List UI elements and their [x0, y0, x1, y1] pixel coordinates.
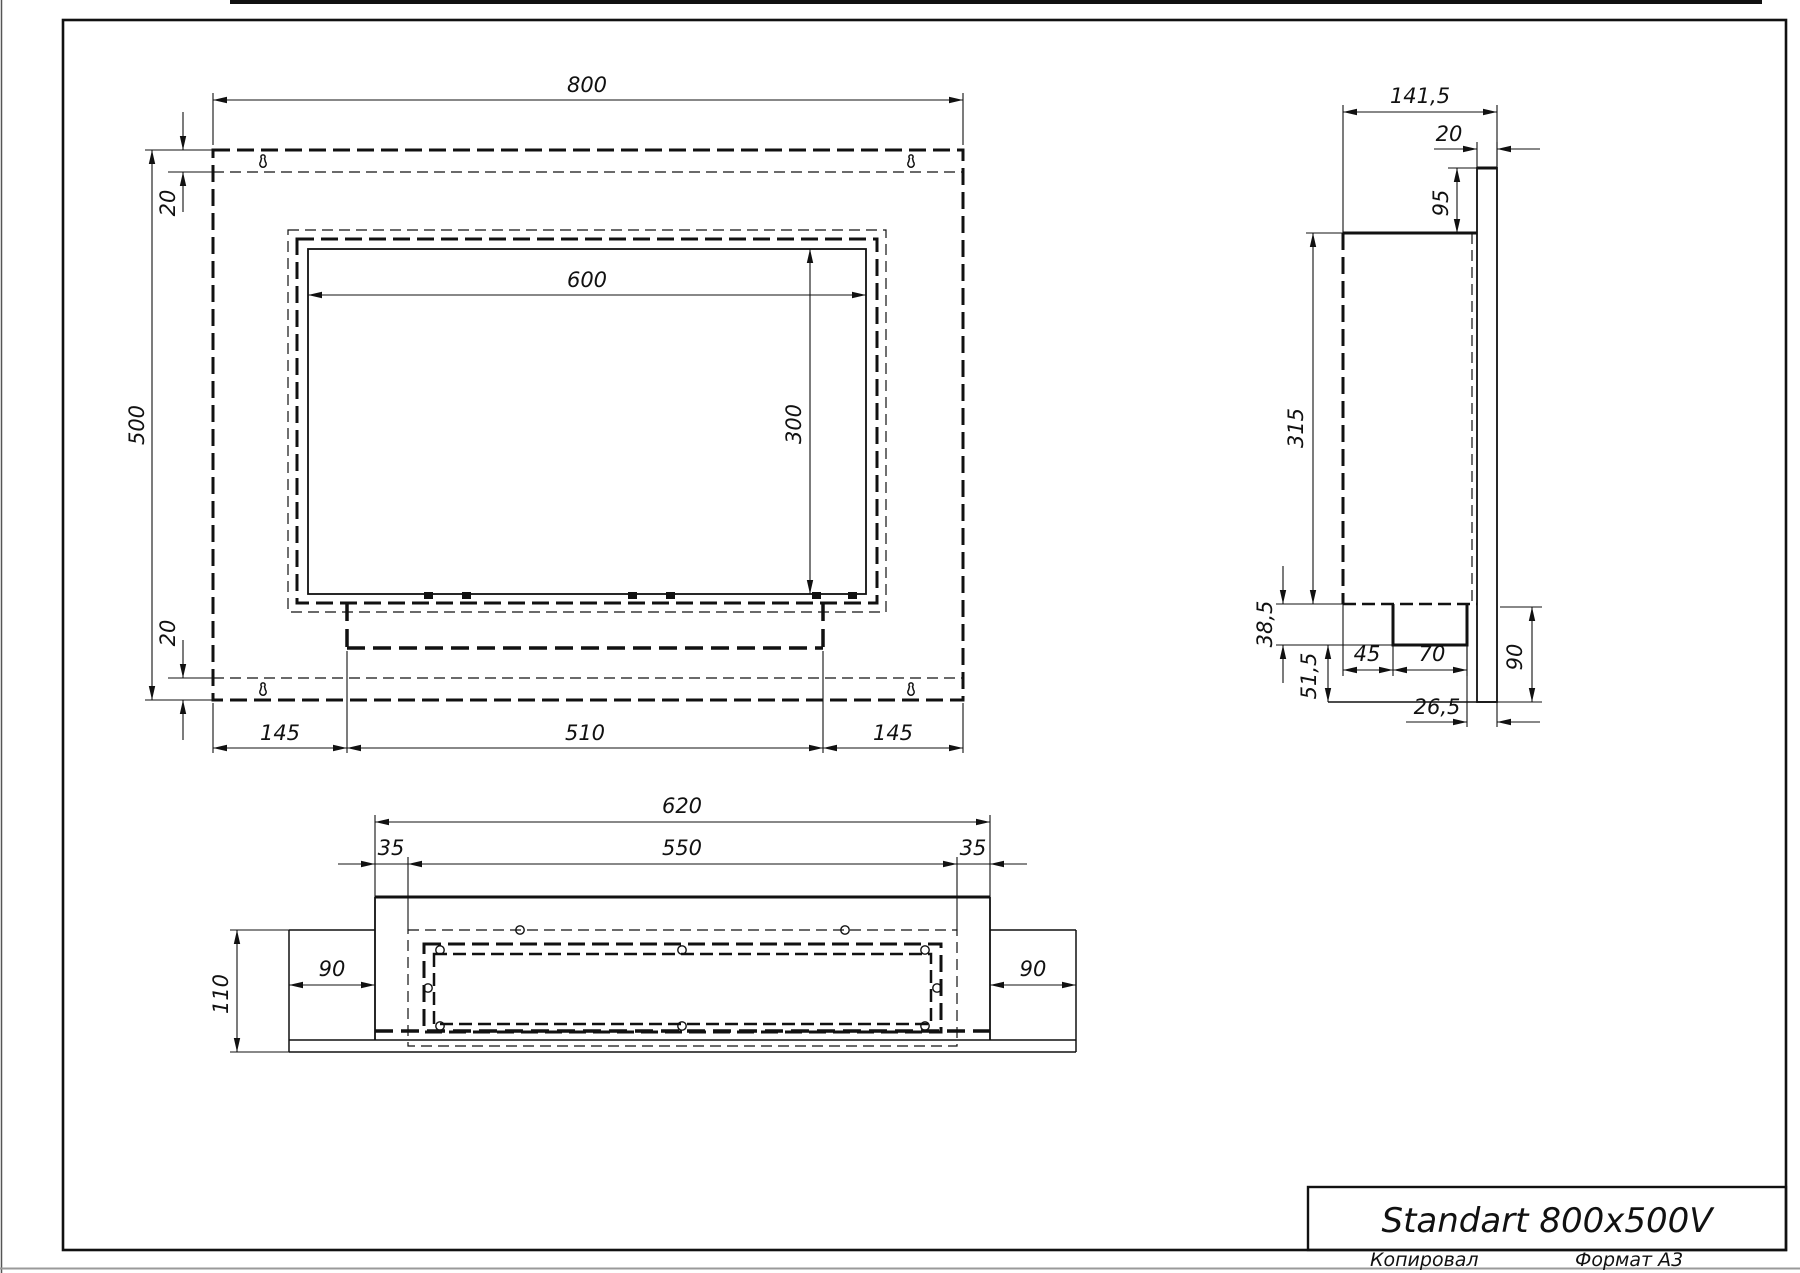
bottom-tray-inner-hidden	[434, 954, 931, 1024]
side-view: 141,5 20 95 315 38,5 51,5 45 70	[1253, 84, 1542, 727]
keyhole-slot-icon	[260, 683, 266, 695]
scan-edge-top	[230, 0, 1762, 4]
front-outer-plate	[213, 150, 963, 700]
footer-copied-by: Копировал	[1370, 1249, 1479, 1271]
dim-20-top-label: 20	[156, 190, 180, 217]
dim-800-label: 800	[567, 73, 607, 97]
dim-90-right-label: 90	[1020, 957, 1047, 981]
title-block-name: Standart 800x500V	[1381, 1201, 1715, 1241]
dim-35-left-label: 35	[378, 836, 405, 860]
bottom-screw-holes	[424, 926, 941, 1030]
dim-145-left-label: 145	[260, 721, 300, 745]
dim-500-label: 500	[125, 405, 149, 445]
front-view: 800 500 20 20 600 300 145 510 145	[125, 73, 963, 753]
drawing-sheet: 800 500 20 20 600 300 145 510 145	[0, 0, 1800, 1273]
dim-26-5-label: 26,5	[1414, 695, 1461, 719]
dim-300-label: 300	[782, 404, 806, 444]
dim-141-5-label: 141,5	[1390, 84, 1450, 108]
dim-45-label: 45	[1354, 642, 1381, 666]
dim-90-left-label: 90	[319, 957, 346, 981]
sheet-frame	[63, 20, 1786, 1250]
dim-20-plate-label: 20	[1436, 122, 1463, 146]
dim-315-label: 315	[1284, 408, 1308, 448]
drawing-canvas: 800 500 20 20 600 300 145 510 145	[0, 0, 1800, 1273]
dim-510-label: 510	[565, 721, 605, 745]
dim-51-5-label: 51,5	[1297, 653, 1321, 700]
dim-90-side-label: 90	[1503, 644, 1527, 671]
dim-35-right-label: 35	[960, 836, 987, 860]
bottom-view: 620 35 550 35 110 90 90	[209, 794, 1076, 1052]
dim-620-label: 620	[662, 794, 702, 818]
dim-145-right-label: 145	[873, 721, 913, 745]
dim-110-label: 110	[209, 974, 233, 1014]
bottom-tray-hidden	[424, 944, 941, 1032]
title-block: Standart 800x500V	[1308, 1187, 1786, 1250]
dim-550-label: 550	[662, 836, 702, 860]
side-wall-plate	[1477, 168, 1497, 702]
bottom-tray-outer-hidden	[408, 930, 957, 1046]
dim-38-5-label: 38,5	[1253, 601, 1277, 648]
dim-600-label: 600	[567, 268, 607, 292]
footer-format: Формат А3	[1575, 1249, 1683, 1271]
keyhole-slot-icon	[908, 683, 914, 695]
dim-70-label: 70	[1419, 642, 1446, 666]
keyhole-slot-icon	[260, 155, 266, 167]
front-clip-tabs	[424, 592, 857, 599]
keyhole-slot-icon	[908, 155, 914, 167]
dim-20-bottom-label: 20	[156, 620, 180, 647]
side-burner-box	[1393, 604, 1467, 645]
dim-95-label: 95	[1429, 190, 1453, 217]
